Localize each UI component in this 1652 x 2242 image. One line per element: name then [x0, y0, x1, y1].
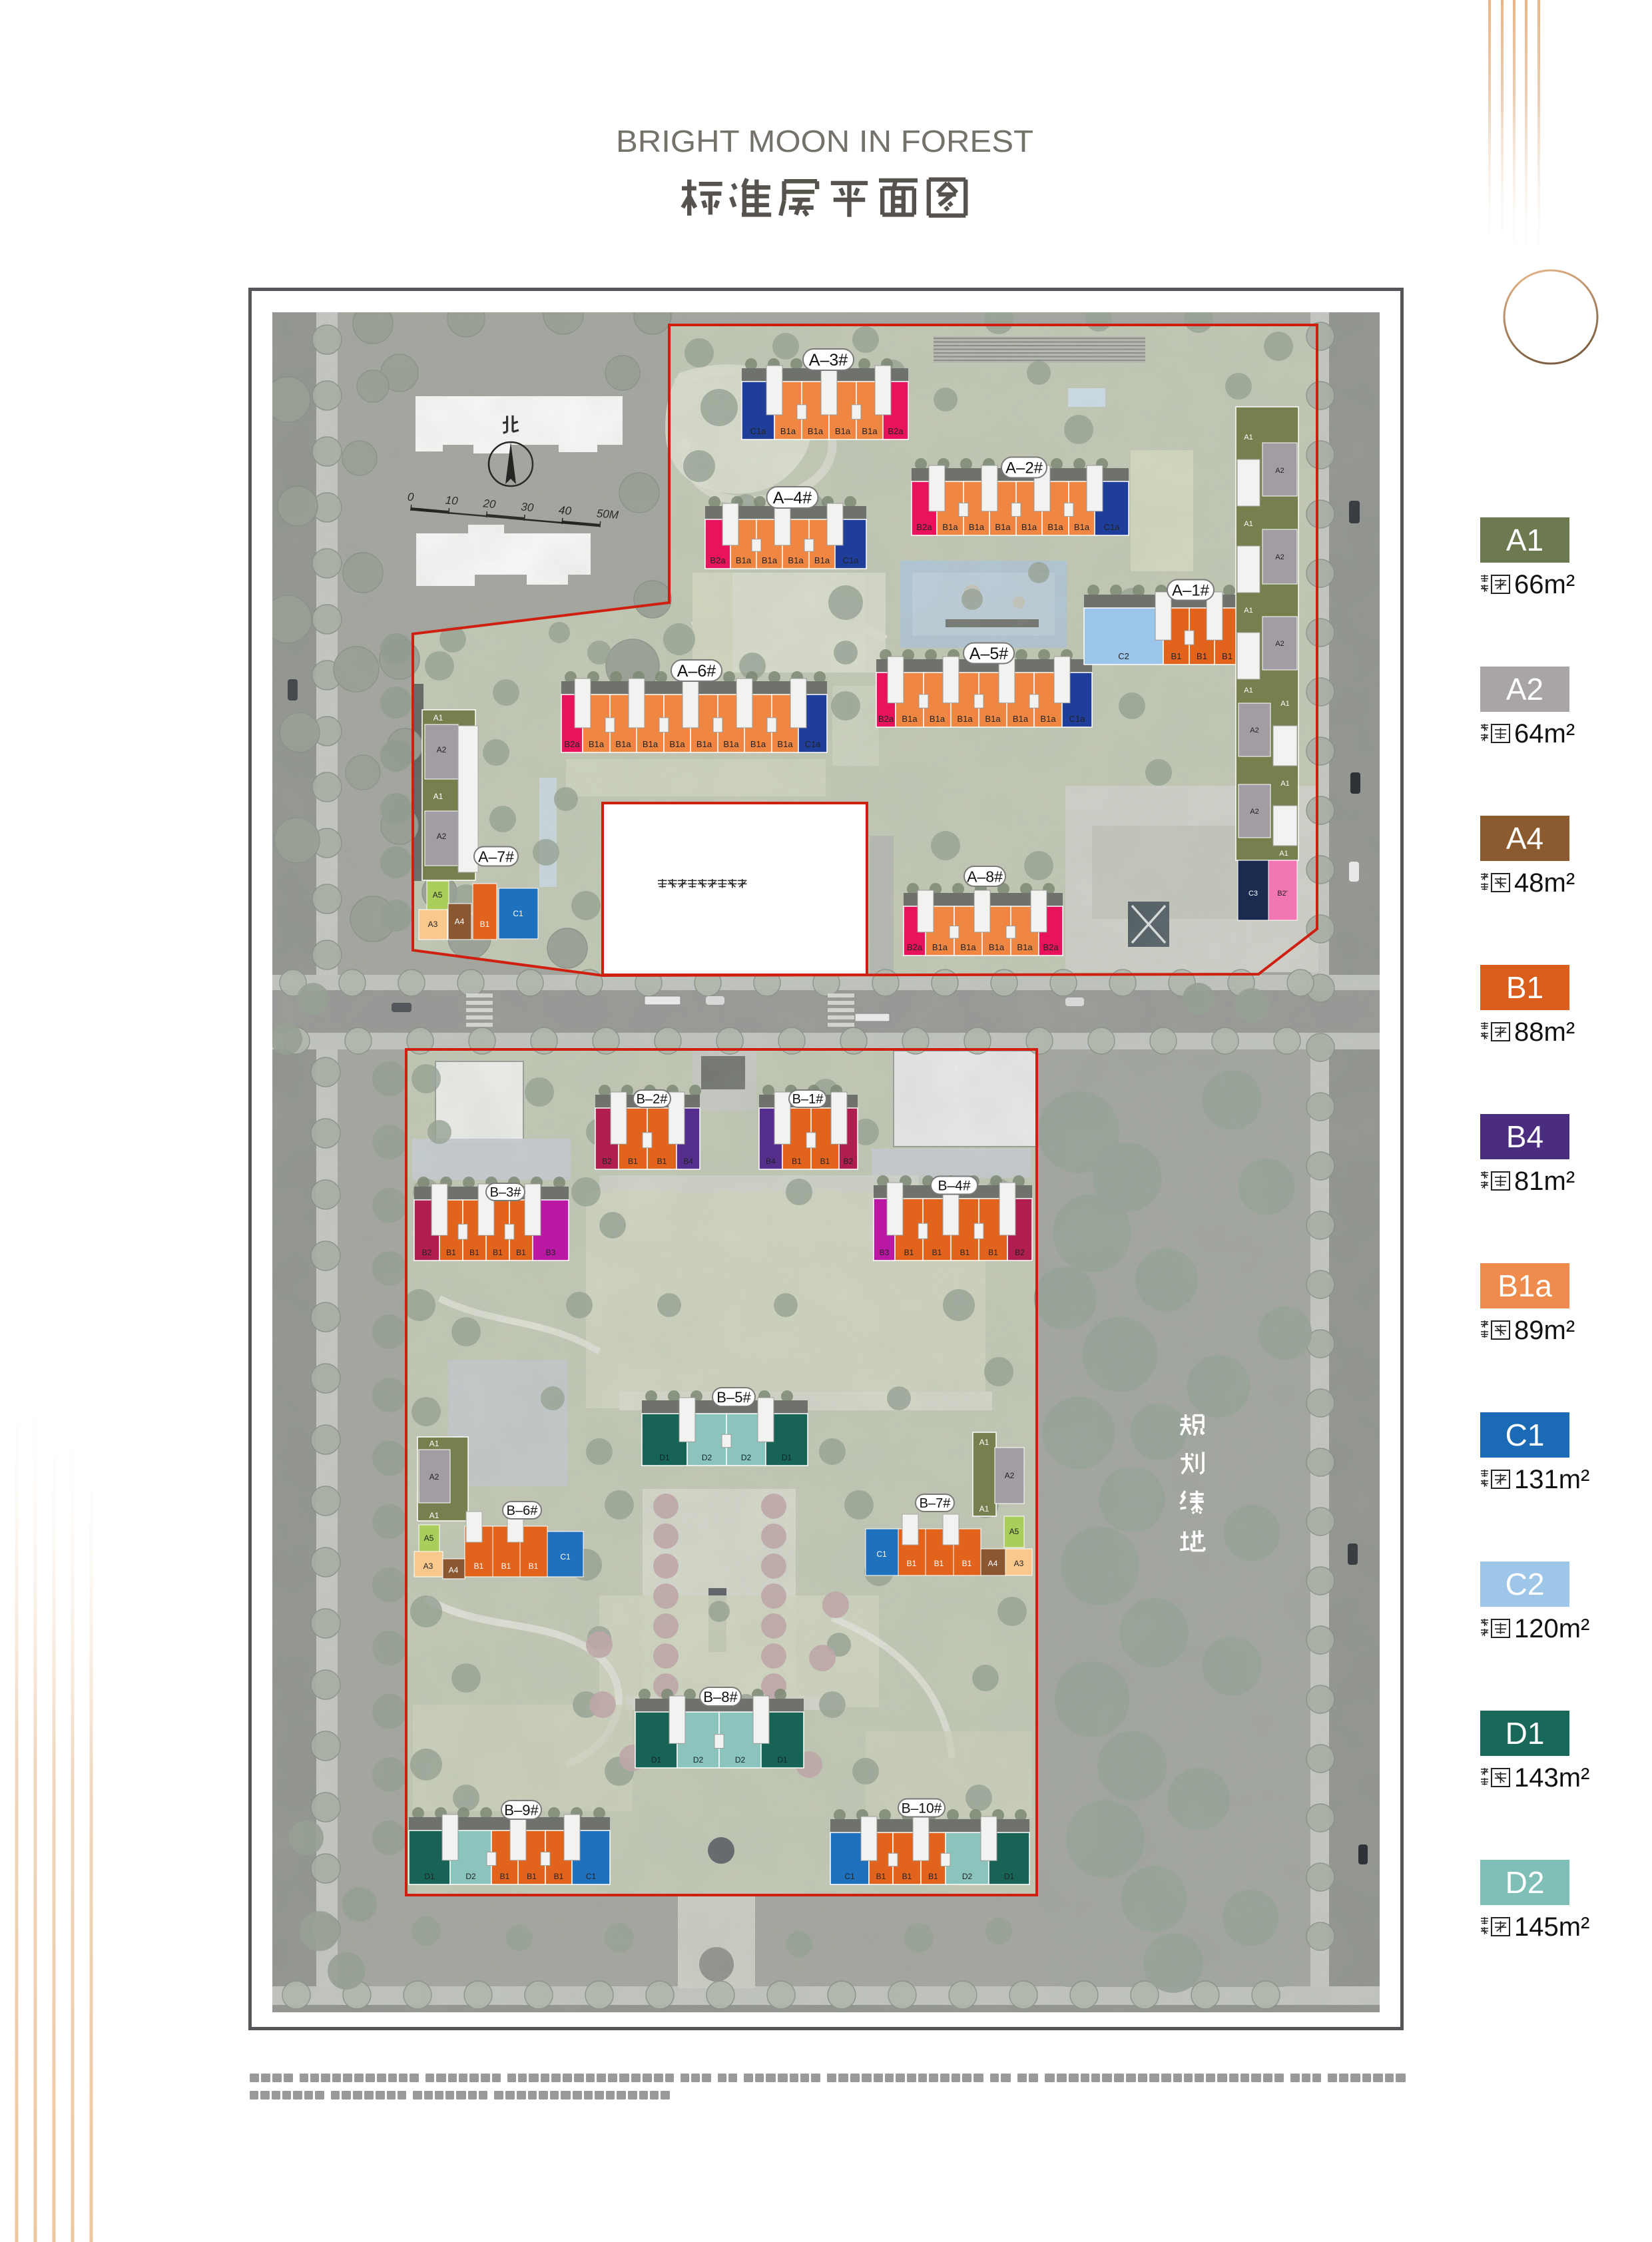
svg-text:B1: B1: [474, 1561, 484, 1571]
svg-text:B1a: B1a: [835, 426, 851, 436]
svg-text:B1: B1: [529, 1561, 539, 1571]
svg-text:B1a: B1a: [750, 739, 766, 749]
svg-text:B1: B1: [904, 1248, 914, 1257]
svg-text:A2: A2: [437, 832, 447, 841]
svg-text:B–8#: B–8#: [703, 1689, 738, 1705]
svg-text:D1: D1: [782, 1453, 792, 1462]
svg-text:A1: A1: [1506, 523, 1543, 557]
svg-text:A1: A1: [433, 713, 443, 722]
svg-text:D2: D2: [735, 1755, 746, 1765]
svg-text:A–5#: A–5#: [969, 645, 1008, 663]
svg-text:C1a: C1a: [1104, 522, 1121, 532]
svg-text:C3: C3: [1248, 890, 1258, 898]
svg-text:A2: A2: [1005, 1471, 1015, 1480]
svg-text:A1: A1: [429, 1439, 439, 1448]
svg-text:B1a: B1a: [736, 555, 752, 565]
svg-text:A1: A1: [979, 1504, 989, 1514]
svg-text:B1a: B1a: [1498, 1268, 1552, 1303]
svg-text:B1: B1: [493, 1248, 503, 1257]
svg-text:C1a: C1a: [843, 555, 860, 565]
svg-text:A1: A1: [1244, 607, 1252, 615]
svg-text:B1a: B1a: [1047, 522, 1063, 532]
svg-text:D1: D1: [1004, 1872, 1015, 1881]
svg-text:81m²: 81m²: [1514, 1167, 1575, 1196]
svg-text:A2: A2: [1275, 640, 1284, 648]
svg-text:B1: B1: [480, 920, 490, 929]
svg-text:B2a: B2a: [710, 555, 726, 565]
svg-text:A4: A4: [1506, 821, 1543, 856]
svg-text:B1a: B1a: [723, 739, 739, 749]
svg-text:B1a: B1a: [1074, 522, 1090, 532]
svg-text:B1: B1: [516, 1248, 526, 1257]
svg-text:C1: C1: [1506, 1418, 1545, 1452]
svg-text:A2: A2: [1250, 808, 1258, 816]
svg-text:B1a: B1a: [615, 739, 631, 749]
svg-text:B1: B1: [446, 1248, 456, 1257]
svg-text:B1a: B1a: [589, 739, 605, 749]
svg-text:B1a: B1a: [930, 714, 946, 724]
svg-text:64m²: 64m²: [1514, 719, 1575, 748]
svg-text:B1: B1: [820, 1157, 830, 1166]
svg-text:B1a: B1a: [780, 426, 796, 436]
svg-text:B–5#: B–5#: [716, 1389, 751, 1406]
svg-text:A5: A5: [433, 890, 443, 900]
svg-text:B3: B3: [880, 1248, 890, 1257]
svg-text:B2a: B2a: [907, 942, 923, 952]
svg-text:B1a: B1a: [814, 555, 830, 565]
svg-text:C2: C2: [1118, 651, 1129, 661]
svg-text:B1: B1: [500, 1872, 510, 1881]
svg-text:B1a: B1a: [942, 522, 958, 532]
svg-text:A1: A1: [1244, 433, 1252, 441]
svg-text:B1a: B1a: [788, 555, 804, 565]
svg-text:B–7#: B–7#: [920, 1496, 952, 1511]
svg-text:B2a: B2a: [878, 714, 894, 724]
svg-text:B1: B1: [1222, 651, 1233, 661]
svg-text:D1: D1: [651, 1755, 662, 1765]
svg-text:A–7#: A–7#: [478, 848, 514, 865]
svg-text:B1: B1: [988, 1248, 998, 1257]
svg-text:B1: B1: [1506, 970, 1543, 1005]
svg-text:B1a: B1a: [1040, 714, 1056, 724]
svg-text:A1: A1: [1244, 687, 1252, 695]
svg-text:D2: D2: [702, 1453, 712, 1462]
svg-text:B1a: B1a: [1017, 942, 1033, 952]
svg-text:D1: D1: [777, 1755, 788, 1765]
svg-text:B1: B1: [527, 1872, 537, 1881]
svg-text:A–1#: A–1#: [1172, 582, 1210, 600]
svg-text:A1: A1: [1280, 780, 1289, 788]
svg-text:A3: A3: [1014, 1559, 1024, 1568]
svg-text:A–8#: A–8#: [967, 868, 1003, 885]
svg-text:A–6#: A–6#: [677, 662, 716, 681]
svg-text:A5: A5: [424, 1534, 434, 1543]
svg-text:B1: B1: [657, 1157, 667, 1166]
svg-text:B1: B1: [934, 1559, 944, 1568]
svg-text:B1: B1: [928, 1872, 938, 1881]
svg-text:B1a: B1a: [862, 426, 878, 436]
svg-text:A1: A1: [1280, 700, 1289, 708]
svg-text:B2a: B2a: [564, 739, 580, 749]
svg-text:A5: A5: [1009, 1527, 1019, 1536]
svg-text:A1: A1: [433, 792, 443, 801]
svg-text:B1: B1: [792, 1157, 802, 1166]
svg-text:C2: C2: [1506, 1567, 1545, 1601]
svg-text:A3: A3: [423, 1561, 433, 1571]
svg-text:B1a: B1a: [960, 942, 976, 952]
svg-text:B2a: B2a: [1043, 942, 1059, 952]
svg-text:B2: B2: [844, 1157, 854, 1166]
svg-text:B–4#: B–4#: [938, 1179, 970, 1194]
svg-text:B–3#: B–3#: [490, 1185, 522, 1200]
svg-text:A1: A1: [979, 1438, 989, 1447]
svg-text:B1: B1: [932, 1248, 942, 1257]
svg-text:D2: D2: [962, 1872, 973, 1881]
svg-text:B2: B2: [1015, 1248, 1025, 1257]
svg-text:B–6#: B–6#: [507, 1504, 539, 1518]
svg-text:B1a: B1a: [696, 739, 712, 749]
svg-text:B1: B1: [907, 1559, 917, 1568]
svg-text:C1: C1: [876, 1549, 887, 1559]
svg-text:D1: D1: [424, 1872, 435, 1881]
svg-text:A2: A2: [1275, 467, 1284, 475]
svg-text:B1: B1: [1197, 651, 1207, 661]
svg-text:D2: D2: [465, 1872, 476, 1881]
svg-text:A1: A1: [1279, 850, 1288, 858]
svg-text:A2: A2: [1250, 726, 1258, 734]
svg-text:B1a: B1a: [643, 739, 659, 749]
svg-text:B1a: B1a: [995, 522, 1011, 532]
svg-text:C1a: C1a: [805, 739, 822, 749]
svg-text:B1: B1: [501, 1561, 511, 1571]
svg-text:A4: A4: [988, 1559, 998, 1568]
svg-text:B1a: B1a: [1021, 522, 1037, 532]
svg-text:B4: B4: [683, 1157, 693, 1166]
svg-text:B4: B4: [1506, 1119, 1543, 1154]
svg-text:D1: D1: [1506, 1716, 1545, 1751]
svg-text:D2: D2: [693, 1755, 704, 1765]
svg-text:B2: B2: [422, 1248, 432, 1257]
svg-text:D1: D1: [659, 1453, 670, 1462]
svg-text:B1a: B1a: [902, 714, 918, 724]
svg-text:A1: A1: [1244, 520, 1252, 528]
svg-text:131m²: 131m²: [1514, 1465, 1589, 1494]
svg-text:B1: B1: [876, 1872, 886, 1881]
svg-text:B1a: B1a: [989, 942, 1005, 952]
svg-text:A4: A4: [455, 917, 465, 926]
svg-text:D2: D2: [741, 1453, 752, 1462]
svg-text:A2: A2: [1275, 553, 1284, 561]
svg-text:C1: C1: [844, 1872, 855, 1881]
svg-text:48m²: 48m²: [1514, 868, 1575, 898]
svg-text:B–2#: B–2#: [637, 1092, 669, 1107]
svg-text:C1: C1: [586, 1872, 597, 1881]
svg-text:B1: B1: [469, 1248, 479, 1257]
svg-text:A–2#: A–2#: [1005, 459, 1043, 477]
svg-text:B1a: B1a: [1013, 714, 1029, 724]
svg-text:D2: D2: [1506, 1865, 1545, 1900]
svg-text:A2: A2: [429, 1472, 439, 1482]
svg-text:143m²: 143m²: [1514, 1763, 1589, 1793]
svg-text:B1: B1: [554, 1872, 564, 1881]
svg-text:B1: B1: [1171, 651, 1182, 661]
svg-text:B1a: B1a: [985, 714, 1001, 724]
svg-text:B2': B2': [1277, 890, 1288, 898]
svg-text:B1: B1: [628, 1157, 638, 1166]
svg-text:B–10#: B–10#: [902, 1801, 942, 1817]
svg-text:B4: B4: [766, 1157, 776, 1166]
svg-text:A1: A1: [429, 1511, 439, 1520]
svg-text:B3: B3: [546, 1248, 556, 1257]
svg-text:B1a: B1a: [969, 522, 985, 532]
svg-text:A3: A3: [428, 920, 438, 929]
svg-text:A2: A2: [437, 745, 447, 754]
svg-text:66m²: 66m²: [1514, 570, 1575, 599]
svg-text:B2a: B2a: [888, 426, 904, 436]
svg-text:B1a: B1a: [777, 739, 793, 749]
svg-text:B1: B1: [962, 1559, 972, 1568]
svg-text:A2: A2: [1506, 672, 1543, 706]
svg-text:B1: B1: [960, 1248, 970, 1257]
svg-text:C1a: C1a: [750, 426, 767, 436]
svg-text:C1a: C1a: [1069, 714, 1086, 724]
svg-text:B1a: B1a: [762, 555, 778, 565]
svg-text:B2: B2: [602, 1157, 612, 1166]
svg-text:120m²: 120m²: [1514, 1614, 1589, 1643]
svg-text:B1a: B1a: [932, 942, 948, 952]
svg-text:89m²: 89m²: [1514, 1316, 1575, 1345]
svg-text:B1a: B1a: [808, 426, 824, 436]
svg-text:B1: B1: [902, 1872, 912, 1881]
svg-text:B–9#: B–9#: [504, 1802, 539, 1819]
svg-text:B1a: B1a: [669, 739, 685, 749]
svg-text:B–1#: B–1#: [792, 1092, 824, 1107]
svg-text:A–4#: A–4#: [773, 489, 812, 507]
svg-text:88m²: 88m²: [1514, 1017, 1575, 1047]
svg-text:A–3#: A–3#: [809, 351, 848, 370]
svg-text:A4: A4: [449, 1565, 459, 1575]
svg-text:BRIGHT MOON IN FOREST: BRIGHT MOON IN FOREST: [616, 124, 1033, 158]
svg-text:C1: C1: [513, 909, 523, 918]
svg-text:B1a: B1a: [957, 714, 973, 724]
svg-text:B2a: B2a: [916, 522, 932, 532]
svg-text:C1: C1: [560, 1552, 571, 1561]
svg-text:145m²: 145m²: [1514, 1912, 1589, 1942]
